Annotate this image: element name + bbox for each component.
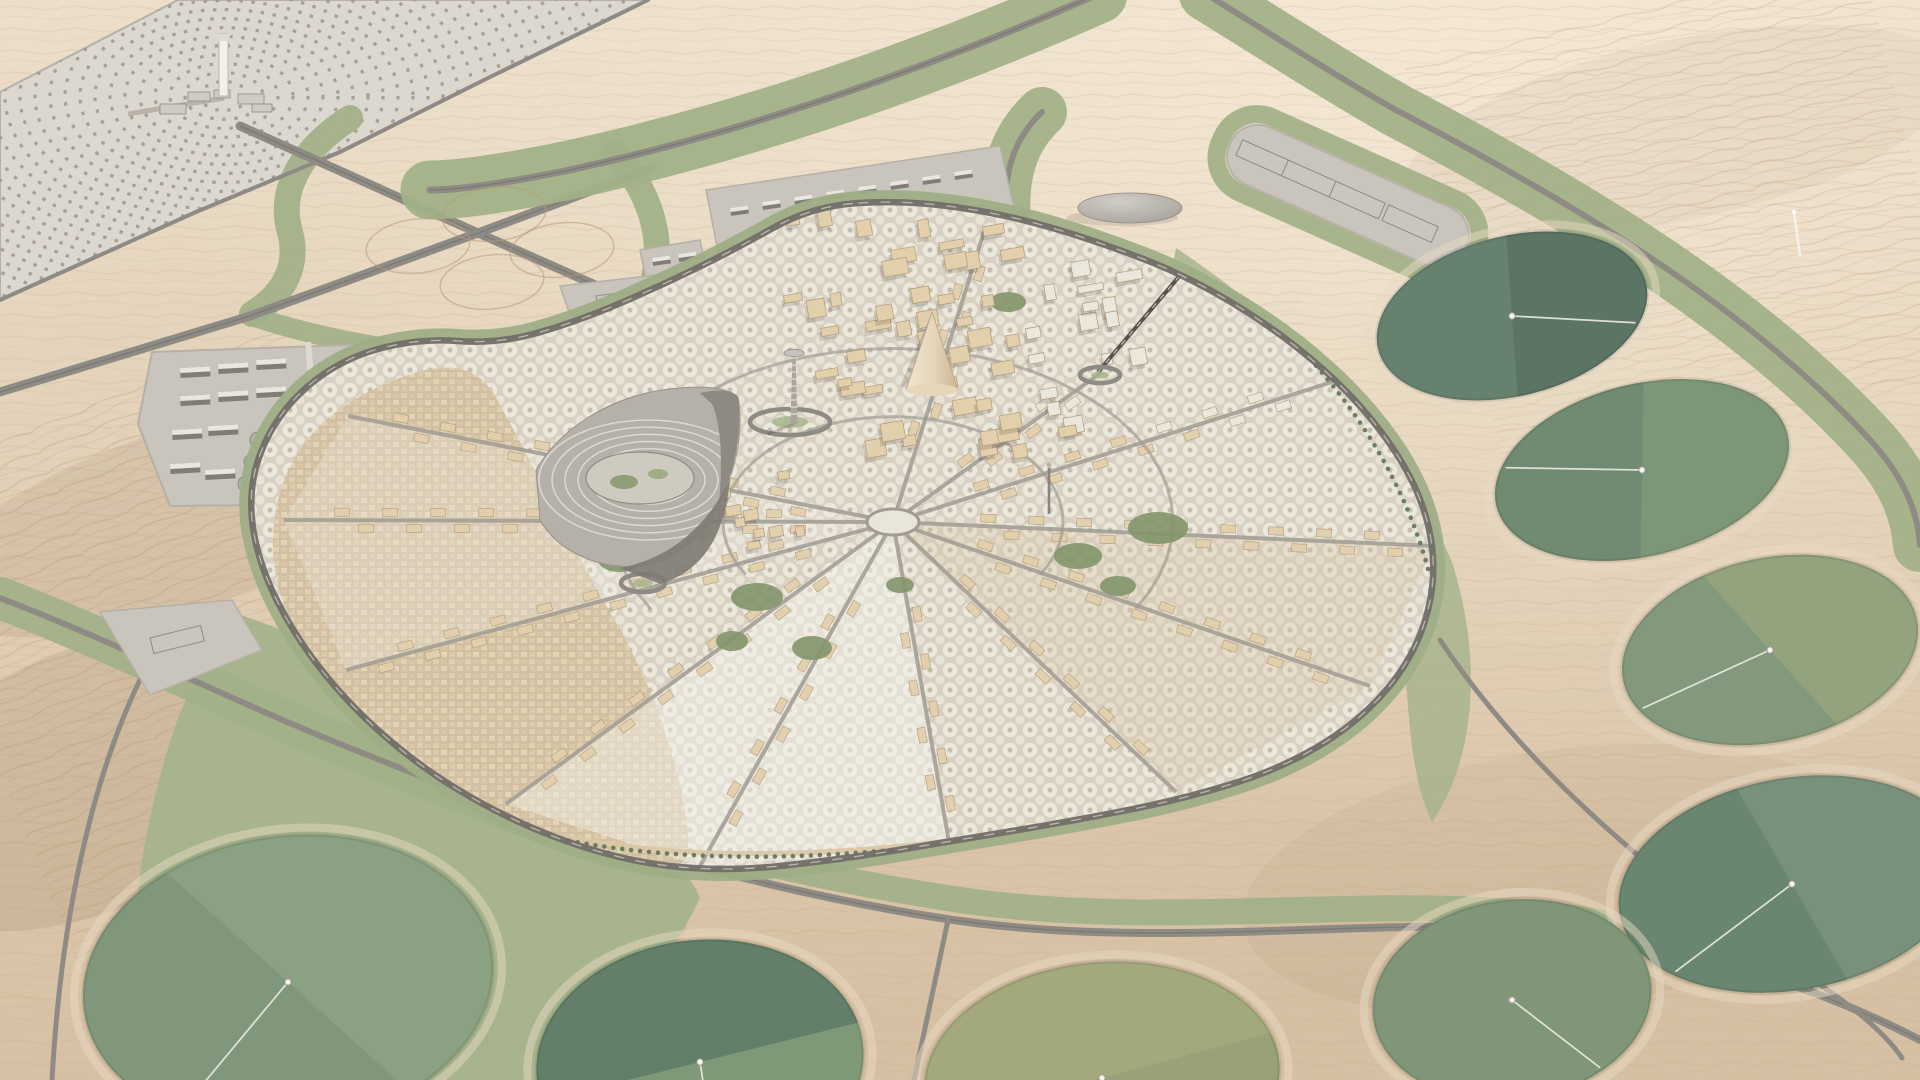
- street-tree: [1363, 428, 1368, 433]
- street-tree: [1418, 541, 1423, 546]
- street-building: [1244, 542, 1259, 551]
- street-tree: [611, 846, 616, 851]
- city-building: [976, 398, 992, 412]
- street-building: [981, 514, 996, 523]
- city-building: [830, 292, 843, 307]
- street-tree: [701, 853, 706, 858]
- monument-figure: [1046, 462, 1051, 467]
- cone-tower-base: [906, 384, 958, 396]
- street-tree: [746, 854, 751, 859]
- central-plaza: [867, 509, 919, 535]
- street-tree: [1347, 406, 1352, 411]
- city-park: [1054, 543, 1102, 569]
- street-building: [1268, 527, 1283, 536]
- street-building: [335, 508, 350, 516]
- street-building: [1076, 518, 1091, 527]
- city-building: [1006, 334, 1021, 348]
- roundabout-island: [1091, 371, 1109, 378]
- street-tree: [1390, 474, 1395, 479]
- street-tree: [656, 850, 661, 855]
- city-park: [716, 631, 748, 651]
- city-park: [792, 636, 832, 660]
- city-building: [880, 420, 906, 442]
- street-building: [1292, 544, 1307, 553]
- roundabout-island: [633, 579, 653, 587]
- city-building: [1012, 443, 1028, 459]
- street-tree: [800, 854, 805, 859]
- street-tree: [827, 852, 832, 857]
- solar-plant-building: [238, 94, 264, 104]
- city-building: [806, 298, 827, 319]
- solar-plant-building: [188, 92, 210, 101]
- street-tree: [1358, 420, 1363, 425]
- street-tree: [629, 848, 634, 853]
- street-tree: [1415, 532, 1420, 537]
- street-tree: [773, 854, 778, 859]
- city-building: [855, 219, 872, 238]
- street-tree: [719, 854, 724, 859]
- city-building: [944, 251, 968, 270]
- street-building: [1316, 529, 1331, 538]
- masterplan-rendering: Aerial rendering of a circular desert ec…: [0, 0, 1920, 1080]
- street-building: [1364, 531, 1379, 540]
- solar-plant-building: [160, 104, 186, 114]
- city-building: [910, 286, 931, 304]
- street-tree: [692, 853, 697, 858]
- street-tree: [737, 854, 742, 859]
- street-tree: [1421, 549, 1426, 554]
- pivot-hub: [1788, 880, 1795, 887]
- city-building: [753, 528, 764, 538]
- street-building: [502, 525, 517, 533]
- street-tree: [1401, 499, 1406, 504]
- street-building: [1100, 535, 1115, 544]
- street-tree: [764, 854, 769, 859]
- city-park: [1128, 512, 1188, 544]
- street-tree: [674, 852, 679, 857]
- pivot-hub: [1099, 1075, 1106, 1080]
- city-building: [875, 304, 894, 322]
- street-tree: [782, 854, 787, 859]
- city-building: [769, 525, 784, 538]
- street-tree: [1412, 524, 1417, 529]
- street-tree: [728, 854, 733, 859]
- street-building: [1387, 548, 1402, 557]
- street-tree: [1342, 398, 1347, 403]
- wind-mast-head: [1792, 210, 1796, 214]
- street-building: [767, 510, 782, 518]
- solar-tower-receiver: [217, 34, 230, 41]
- courtyard-garden: [610, 475, 638, 489]
- street-tree: [1368, 435, 1373, 440]
- city-building: [743, 508, 759, 521]
- street-tree: [1337, 391, 1342, 396]
- city-building: [999, 412, 1022, 431]
- street-tree: [1409, 515, 1414, 520]
- spiral-tower-deck: [784, 349, 804, 357]
- city-park: [731, 583, 783, 611]
- city-park: [1100, 576, 1136, 596]
- city-building: [725, 504, 741, 516]
- city-building: [1105, 311, 1119, 328]
- street-tree: [602, 844, 607, 849]
- street-building: [431, 508, 446, 516]
- street-tree: [638, 849, 643, 854]
- city-building: [1047, 401, 1061, 416]
- street-building: [479, 509, 494, 517]
- solar-plant-building: [252, 104, 272, 112]
- pivot-hub: [284, 978, 291, 985]
- street-tree: [1426, 567, 1431, 572]
- pivot-hub: [1508, 996, 1515, 1003]
- flat-dome: [1078, 193, 1182, 223]
- city-park: [990, 292, 1026, 312]
- street-tree: [710, 854, 715, 859]
- street-tree: [1394, 483, 1399, 488]
- street-tree: [1372, 443, 1377, 448]
- solar-tower: [219, 34, 228, 96]
- street-tree: [809, 853, 814, 858]
- street-building: [1029, 516, 1044, 525]
- street-tree: [755, 854, 760, 859]
- street-tree: [683, 852, 688, 857]
- city-park: [886, 577, 914, 593]
- city-building: [1025, 326, 1041, 339]
- street-tree: [665, 851, 670, 856]
- pivot-hub: [696, 1058, 703, 1065]
- street-building: [1340, 546, 1355, 555]
- street-building: [454, 525, 469, 533]
- city-building: [967, 327, 992, 348]
- street-tree: [620, 847, 625, 852]
- city-building: [795, 526, 805, 537]
- street-building: [1220, 525, 1235, 534]
- street-tree: [791, 854, 796, 859]
- street-building: [1004, 531, 1019, 540]
- street-tree: [1381, 459, 1386, 464]
- street-tree: [1353, 413, 1358, 418]
- street-tree: [818, 853, 823, 858]
- street-building: [383, 508, 398, 516]
- street-tree: [1423, 558, 1428, 563]
- city-building: [1129, 347, 1148, 366]
- street-tree: [1377, 451, 1382, 456]
- street-building: [406, 524, 421, 532]
- courtyard-garden: [648, 469, 668, 479]
- street-tree: [647, 850, 652, 855]
- city-building: [980, 429, 999, 446]
- street-tree: [1405, 507, 1410, 512]
- city-building: [735, 517, 746, 527]
- city-building: [981, 294, 994, 307]
- city-building: [777, 470, 790, 480]
- scene-canvas: [0, 0, 1920, 1080]
- city-building: [896, 320, 912, 337]
- street-building: [1196, 539, 1211, 548]
- street-tree: [1398, 491, 1403, 496]
- street-building: [358, 524, 373, 532]
- city-building: [1070, 260, 1091, 278]
- street-tree: [1331, 384, 1336, 389]
- landmark-courtyard: [586, 452, 694, 504]
- street-tree: [1386, 467, 1391, 472]
